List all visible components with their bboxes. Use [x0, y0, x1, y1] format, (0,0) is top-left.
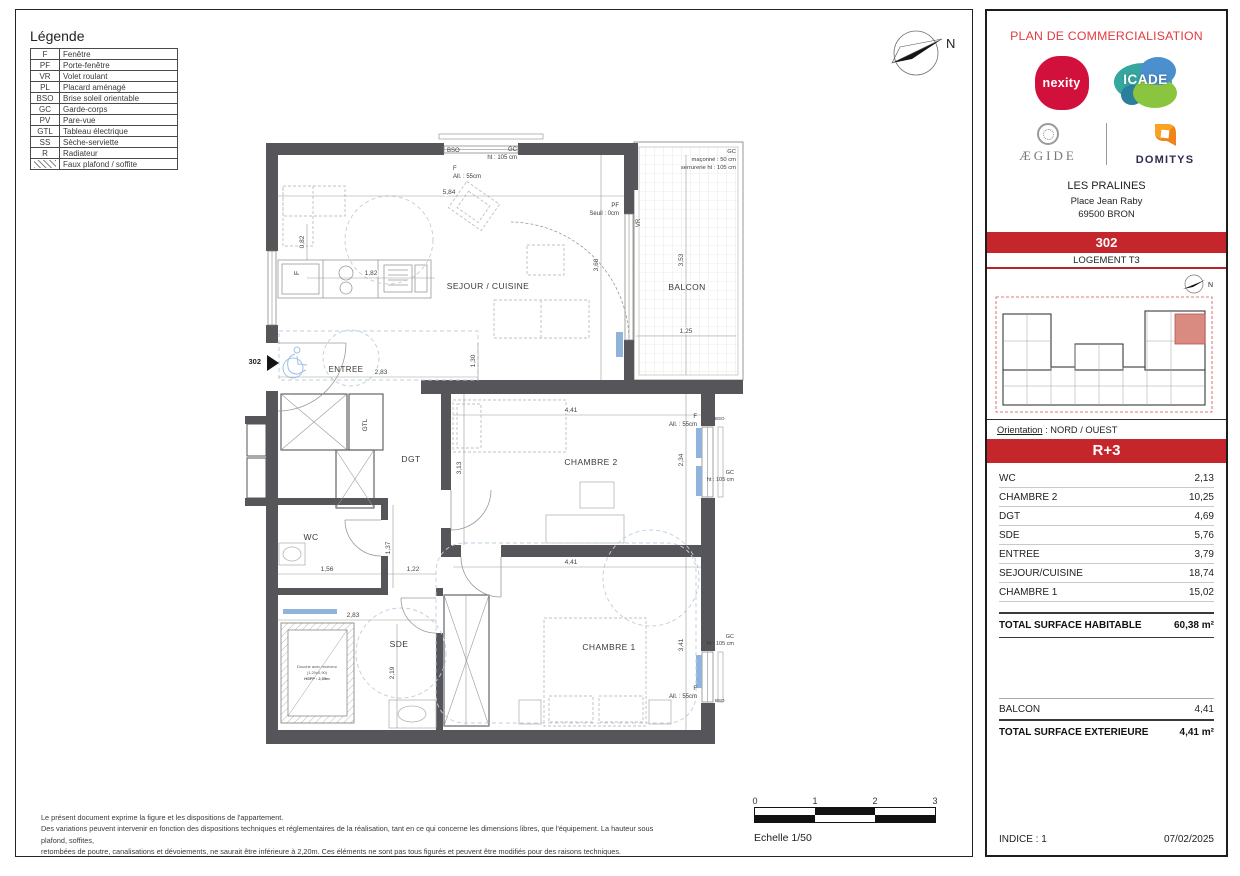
legend-row: BSOBrise soleil orientable — [31, 93, 178, 104]
service-shaft — [247, 424, 266, 498]
dim-label: 0,82 — [299, 235, 306, 248]
legend-row: RRadiateur — [31, 148, 178, 159]
dim-label: 1,25 — [680, 328, 693, 335]
shower-note: HSFP : 2,05m — [304, 676, 330, 681]
chair — [580, 482, 614, 508]
legend-row: Faux plafond / soffite — [31, 159, 178, 170]
legend: Légende FFenêtre PFPorte-fenêtre VRVolet… — [30, 28, 178, 170]
aegide-emblem-icon — [1037, 123, 1059, 145]
annotation: GC — [508, 147, 518, 153]
key-plan: N — [987, 269, 1226, 419]
entry-arrow-icon — [267, 355, 279, 371]
annotation: All. : 55cm — [453, 174, 481, 180]
annotation: Seuil : 0cm — [589, 211, 619, 217]
disclaimer-line: retombées de poutre, canalisations et dé… — [41, 846, 671, 857]
bed-chambre1 — [544, 618, 646, 726]
radiator-icon — [616, 332, 623, 357]
area-row: CHAMBRE 210,25 — [999, 488, 1214, 507]
room-label-balcon: BALCON — [668, 282, 705, 292]
legend-row: FFenêtre — [31, 49, 178, 60]
north-label: N — [1208, 282, 1213, 289]
disclaimer: Le présent document exprime la figure et… — [41, 812, 671, 857]
kitchen-counter — [278, 260, 431, 298]
aegide-logo: ÆGIDE — [1000, 123, 1096, 165]
areas-table: WC2,13 CHAMBRE 210,25 DGT4,69 SDE5,76 EN… — [987, 463, 1226, 602]
floor-bar: R+3 — [987, 439, 1226, 463]
annotation: GC — [727, 149, 736, 155]
dim-label: 4,41 — [565, 559, 578, 566]
keyplan-unit-highlight — [1175, 314, 1205, 344]
annotation: F — [294, 271, 301, 275]
sofa — [283, 186, 313, 246]
legend-row: SSSèche-serviette — [31, 137, 178, 148]
annotation: GC — [726, 634, 734, 640]
legend-title: Légende — [30, 28, 178, 44]
nexity-logo: nexity — [1035, 56, 1089, 110]
logos-row-2: ÆGIDE DOMITYS — [987, 118, 1226, 170]
disclaimer-line: Le présent document exprime la figure et… — [41, 812, 671, 823]
orientation: Orientation : NORD / OUEST — [987, 419, 1226, 439]
dim-label: 3,13 — [456, 461, 463, 474]
armchair — [448, 181, 499, 230]
scale-graphic — [754, 807, 936, 823]
radiator-icon — [696, 466, 702, 496]
annotation: serrurerie ht : 105 cm — [681, 165, 736, 171]
dim-label: 2,19 — [389, 666, 396, 679]
hatch-swatch — [34, 160, 56, 168]
keyplan-north-arrow: N — [1183, 275, 1213, 293]
unit-number-bar: 302 — [987, 232, 1226, 253]
logo-divider — [1106, 123, 1107, 165]
nightstand — [649, 700, 671, 724]
dim-label: 3,53 — [678, 253, 685, 266]
room-label-dgt: DGT — [401, 454, 420, 464]
legend-row: PVPare-vue — [31, 115, 178, 126]
annotation: All. : 55cm — [669, 422, 697, 428]
dim-label: 3,41 — [678, 638, 685, 651]
area-row: WC2,13 — [999, 469, 1214, 488]
annotation: maçonné : 50 cm — [692, 157, 737, 163]
annotation: GC — [726, 470, 734, 476]
north-arrow: N — [878, 16, 964, 88]
annotation: BSO — [715, 698, 725, 703]
scale-label: Echelle 1/50 — [754, 832, 940, 844]
scale-tick: 2 — [872, 796, 877, 806]
annotation: BSO — [715, 416, 725, 421]
total-habitable-row: TOTAL SURFACE HABITABLE 60,38 m² — [999, 612, 1214, 638]
side-table — [527, 245, 564, 275]
project-address: Place Jean Raby 69500 BRON — [987, 195, 1226, 222]
annotation: GTL — [362, 418, 369, 431]
annotation: F — [453, 166, 457, 172]
legend-row: PLPlacard aménagé — [31, 82, 178, 93]
dim-label: 1,82 — [365, 270, 378, 277]
room-label-entree: ENTREE — [329, 365, 364, 374]
orientation-label: Orientation — [997, 425, 1042, 435]
dim-label: 1,30 — [470, 354, 477, 367]
total-exterior-row: TOTAL SURFACE EXTERIEURE 4,41 m² — [999, 719, 1214, 744]
room-label-sejour: SEJOUR / CUISINE — [447, 281, 529, 291]
annotation: All. : 55cm — [669, 694, 697, 700]
disclaimer-line: Des variations peuvent intervenir en fon… — [41, 823, 671, 846]
legend-row: VRVolet roulant — [31, 71, 178, 82]
sheet-title: PLAN DE COMMERCIALISATION — [987, 29, 1226, 43]
dim-label: 3,68 — [593, 258, 600, 271]
legend-row: GTLTableau électrique — [31, 126, 178, 137]
unit-entry-marker: 302 — [248, 355, 279, 371]
unit-type-bar: LOGEMENT T3 — [987, 253, 1226, 269]
annotation: ht : 105 cm — [487, 155, 517, 161]
bed-chambre2 — [453, 400, 566, 452]
shower-note: (1,20x0,90) — [307, 670, 328, 675]
dim-label: 2,83 — [375, 369, 388, 376]
room-label-wc: WC — [304, 532, 319, 542]
area-row: ENTREE3,79 — [999, 545, 1214, 564]
annotation: PF — [611, 203, 619, 209]
dim-label: 5,84 — [443, 189, 456, 196]
annotation: BSO — [447, 148, 460, 154]
hob-icon — [340, 282, 352, 294]
scale-bar: 0 1 2 3 Echelle 1/50 — [754, 796, 940, 844]
dim-label: 1,56 — [321, 566, 334, 573]
sofa — [494, 300, 589, 338]
unit-number-label: 302 — [248, 357, 261, 366]
logos-row-1: nexity ICADE — [987, 54, 1226, 112]
area-row: SDE5,76 — [999, 526, 1214, 545]
annotation: ht : 105 cm — [707, 641, 735, 647]
annotation: F — [693, 414, 697, 420]
orientation-value: : NORD / OUEST — [1045, 425, 1117, 435]
dim-label: 1,22 — [407, 566, 420, 573]
shower-note: Douche avec receveur — [297, 664, 338, 669]
domitys-logo: DOMITYS — [1117, 122, 1213, 166]
scale-tick: 0 — [752, 796, 757, 806]
legend-row: PFPorte-fenêtre — [31, 60, 178, 71]
balcony — [634, 142, 743, 380]
scale-tick: 3 — [932, 796, 937, 806]
indice: INDICE : 1 — [999, 834, 1047, 845]
shower: Douche avec receveur (1,20x0,90) HSFP : … — [281, 623, 354, 723]
dim-label: 2,34 — [678, 453, 685, 466]
vanity — [389, 700, 436, 728]
domitys-icon — [1152, 122, 1178, 148]
annotation: VR — [636, 218, 642, 227]
floor-plan: Douche avec receveur (1,20x0,90) HSFP : … — [231, 128, 771, 780]
room-label-chambre1: CHAMBRE 1 — [582, 642, 635, 652]
plan-sheet: Légende FFenêtre PFPorte-fenêtre VRVolet… — [15, 9, 973, 857]
balcon-row: BALCON 4,41 — [999, 698, 1214, 719]
date: 07/02/2025 — [1164, 834, 1214, 845]
dim-label: 2,83 — [347, 612, 360, 619]
area-row: DGT4,69 — [999, 507, 1214, 526]
annotation: F — [693, 686, 697, 692]
towel-dryer-icon — [283, 609, 337, 614]
annotation: ht : 105 cm — [707, 477, 735, 483]
sink-icon — [384, 265, 412, 292]
title-block: PLAN DE COMMERCIALISATION nexity ICADE Æ… — [985, 9, 1228, 857]
project-name: LES PRALINES — [987, 180, 1226, 192]
nightstand — [519, 700, 541, 724]
radiator-icon — [696, 428, 702, 458]
accessibility-icon — [283, 347, 307, 378]
dim-label: 1,37 — [385, 541, 392, 554]
north-label: N — [946, 36, 955, 51]
desk — [546, 515, 624, 543]
titleblock-footer: INDICE : 1 07/02/2025 — [999, 834, 1214, 845]
project-info: LES PRALINES Place Jean Raby 69500 BRON — [987, 180, 1226, 222]
page: Légende FFenêtre PFPorte-fenêtre VRVolet… — [0, 0, 1240, 876]
area-row: CHAMBRE 115,02 — [999, 583, 1214, 602]
radiator-icon — [696, 655, 702, 688]
room-label-chambre2: CHAMBRE 2 — [564, 457, 617, 467]
dim-label: 4,41 — [565, 407, 578, 414]
room-label-sde: SDE — [390, 639, 409, 649]
scale-tick: 1 — [812, 796, 817, 806]
legend-row: GCGarde-corps — [31, 104, 178, 115]
area-row: SEJOUR/CUISINE18,74 — [999, 564, 1214, 583]
legend-table: FFenêtre PFPorte-fenêtre VRVolet roulant… — [30, 48, 178, 170]
scale-ticks: 0 1 2 3 — [754, 796, 940, 807]
icade-logo: ICADE — [1113, 54, 1179, 112]
